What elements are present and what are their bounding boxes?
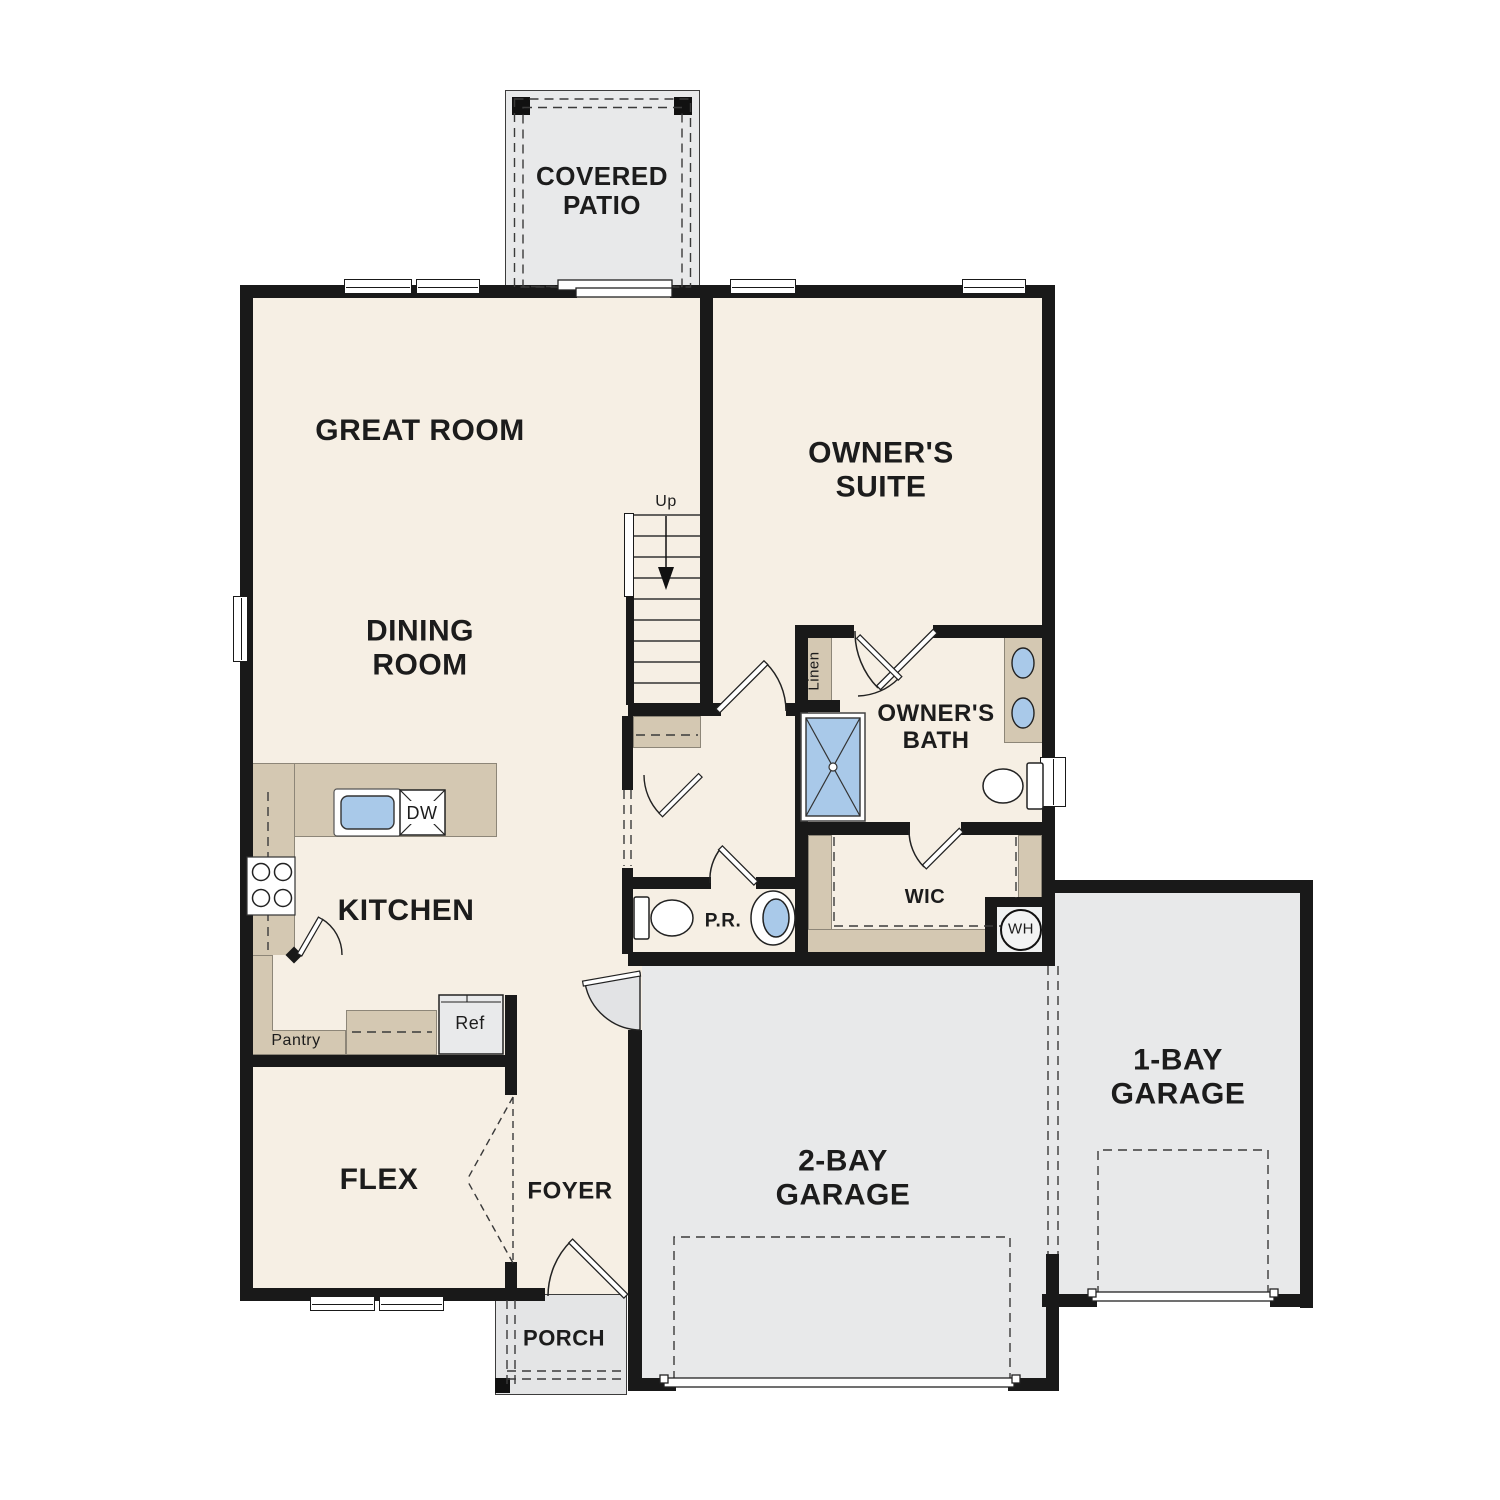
stair-rail (624, 513, 634, 597)
window-flex-1 (310, 1296, 375, 1311)
label-owners-bath: OWNER'S BATH (877, 701, 994, 755)
wall-flex-top (240, 1055, 517, 1067)
kitchen-counter-lower (346, 1010, 437, 1055)
pantry-floor (272, 955, 346, 1031)
window-greatroom-1 (344, 279, 412, 294)
wall-flex-foyer-bottom (505, 1262, 517, 1301)
wall-bath-top-right (933, 625, 1042, 638)
label-pantry: Pantry (271, 1032, 320, 1050)
label-1bay-garage: 1-BAY GARAGE (1111, 1043, 1246, 1110)
label-porch: PORCH (523, 1327, 605, 1352)
label-foyer: FOYER (527, 1179, 612, 1206)
wall-stair-left (626, 595, 634, 705)
wall-2bay-bottom-left (628, 1378, 676, 1391)
label-wh: WH (1008, 922, 1034, 939)
label-pr: P.R. (705, 910, 742, 931)
label-2bay-garage: 2-BAY GARAGE (776, 1144, 911, 1211)
label-flex: FLEX (340, 1163, 419, 1197)
patio-post-right (674, 97, 692, 115)
understair-closet-shelf (633, 716, 701, 748)
wall-greatroom-suite (700, 285, 713, 710)
wall-kitchen-foyer (505, 995, 517, 1095)
label-great-room: GREAT ROOM (315, 414, 524, 448)
wall-2bay-left (628, 1030, 642, 1391)
wall-bath-top-left (808, 625, 854, 638)
wall-1bay-bottom-right (1270, 1294, 1313, 1307)
label-owners-suite: OWNER'S SUITE (808, 436, 954, 503)
window-bath (1040, 757, 1066, 807)
porch-post (495, 1378, 510, 1393)
floor-plan: COVERED PATIO GREAT ROOM OWNER'S SUITE D… (0, 0, 1500, 1500)
label-linen: Linen (807, 651, 824, 690)
wall-pr-top-right (756, 877, 798, 889)
label-wic: WIC (905, 886, 945, 908)
wall-2bay-bottom-right (1008, 1378, 1059, 1391)
label-covered-patio: COVERED PATIO (536, 162, 668, 220)
wall-pr-top-left (622, 877, 711, 889)
wic-shelf-right (1018, 835, 1042, 899)
wall-1bay-right (1300, 880, 1313, 1308)
wall-stair-bottom (628, 703, 721, 716)
wall-left (240, 285, 253, 1301)
wall-linen-bottom (795, 700, 840, 712)
wall-understair-left (622, 716, 633, 790)
window-greatroom-2 (416, 279, 480, 294)
patio-post-left (512, 97, 530, 115)
wall-wh-horiz (985, 897, 1043, 907)
window-flex-2 (379, 1296, 444, 1311)
label-kitchen: KITCHEN (338, 894, 475, 928)
wall-pr-left (622, 868, 633, 954)
window-suite-1 (730, 279, 796, 294)
wall-2bay-top (628, 952, 1055, 966)
wall-bath-wic-left (808, 822, 910, 835)
label-dw: DW (407, 803, 438, 823)
window-suite-2 (962, 279, 1026, 294)
garage-doorway-floor (628, 966, 642, 1032)
label-ref: Ref (455, 1013, 485, 1033)
label-up: Up (655, 493, 676, 511)
wall-bath-wic-right (961, 822, 1042, 835)
wall-mid-garage-lower (1046, 1254, 1059, 1391)
window-dining (233, 596, 248, 662)
label-dining-room: DINING ROOM (366, 614, 474, 681)
wall-1bay-top (1042, 880, 1313, 893)
wic-shelf-bottom (806, 929, 997, 953)
vanity-counter (1004, 637, 1043, 743)
